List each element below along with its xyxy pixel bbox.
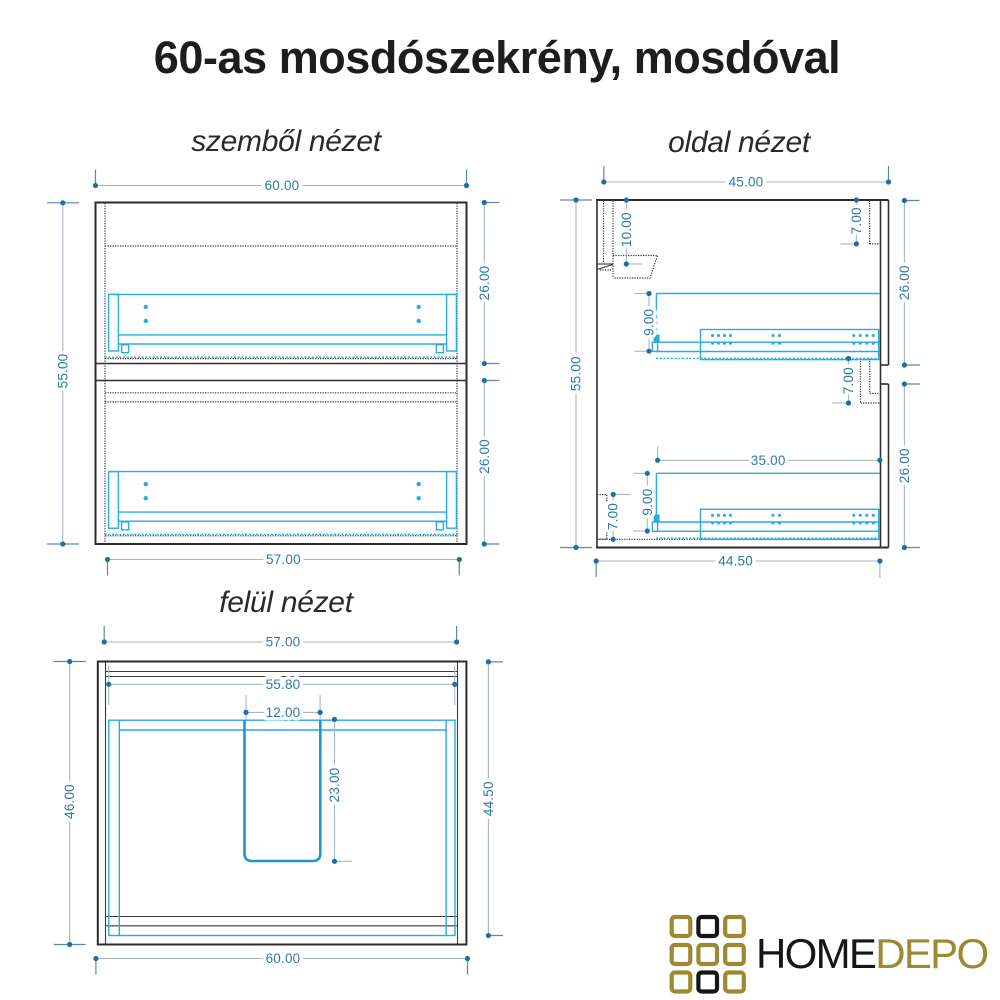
svg-text:57.00: 57.00: [266, 635, 301, 650]
svg-text:55.00: 55.00: [569, 356, 584, 391]
svg-text:oldal nézet: oldal nézet: [668, 126, 812, 159]
svg-text:23.00: 23.00: [327, 768, 342, 803]
svg-text:35.00: 35.00: [751, 453, 786, 468]
svg-text:felül nézet: felül nézet: [219, 586, 354, 619]
svg-text:9.00: 9.00: [640, 489, 655, 516]
svg-text:57.00: 57.00: [266, 552, 301, 567]
svg-text:7.00: 7.00: [841, 367, 856, 394]
svg-text:44.50: 44.50: [718, 554, 753, 569]
svg-text:60.00: 60.00: [265, 178, 300, 193]
svg-text:12.00: 12.00: [266, 705, 301, 720]
svg-text:26.00: 26.00: [477, 439, 492, 474]
svg-text:46.00: 46.00: [62, 784, 77, 819]
svg-text:26.00: 26.00: [897, 448, 912, 483]
svg-text:55.80: 55.80: [266, 677, 301, 692]
svg-text:55.00: 55.00: [55, 354, 70, 389]
svg-text:45.00: 45.00: [729, 175, 764, 190]
svg-text:60.00: 60.00: [266, 951, 301, 966]
svg-text:26.00: 26.00: [897, 265, 912, 300]
svg-text:9.00: 9.00: [642, 309, 657, 336]
svg-text:26.00: 26.00: [477, 266, 492, 301]
svg-text:7.00: 7.00: [606, 503, 621, 530]
svg-text:7.00: 7.00: [849, 207, 864, 234]
svg-text:44.50: 44.50: [481, 781, 496, 816]
svg-text:szemből nézet: szemből nézet: [191, 125, 382, 158]
svg-text:HOMEDEPO: HOMEDEPO: [756, 930, 987, 977]
svg-text:60-as mosdószekrény, mosdóval: 60-as mosdószekrény, mosdóval: [154, 32, 840, 83]
svg-text:10.00: 10.00: [619, 212, 634, 247]
